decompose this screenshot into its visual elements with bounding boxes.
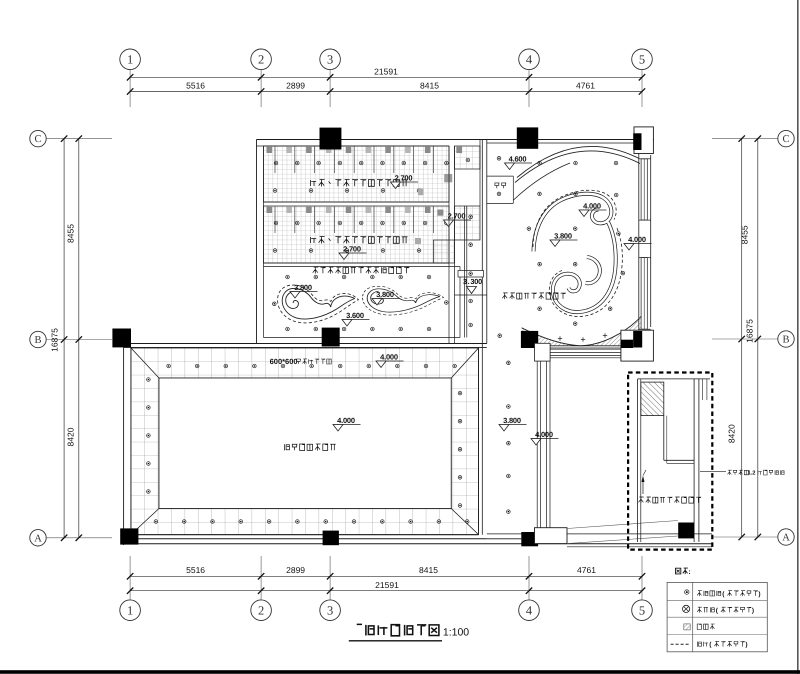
- svg-text:8415: 8415: [420, 80, 439, 90]
- svg-text:3.600: 3.600: [346, 311, 364, 320]
- svg-text:3: 3: [327, 53, 333, 67]
- svg-text:8420: 8420: [727, 424, 737, 443]
- svg-text:600*600: 600*600: [270, 357, 298, 366]
- svg-text:4.000: 4.000: [583, 202, 601, 211]
- svg-text:4761: 4761: [577, 565, 596, 575]
- svg-text:8420: 8420: [66, 427, 76, 446]
- svg-text:5516: 5516: [186, 565, 205, 575]
- svg-text:3.800: 3.800: [554, 232, 572, 241]
- svg-text:4.000: 4.000: [337, 416, 355, 425]
- svg-text:1.2: 1.2: [747, 470, 755, 477]
- svg-text:3: 3: [327, 603, 333, 617]
- svg-text:2: 2: [258, 53, 264, 67]
- svg-text:4.000: 4.000: [380, 353, 398, 362]
- svg-text:): ): [758, 591, 760, 598]
- svg-text:B: B: [782, 335, 789, 346]
- svg-text:16875: 16875: [745, 319, 755, 343]
- svg-text:3.800: 3.800: [294, 283, 312, 292]
- svg-text:8455: 8455: [740, 225, 750, 244]
- svg-text:C: C: [782, 134, 789, 145]
- svg-text:8455: 8455: [66, 224, 76, 243]
- svg-text::: :: [688, 569, 690, 576]
- svg-text:4: 4: [526, 53, 533, 67]
- svg-text:4761: 4761: [576, 80, 595, 90]
- svg-text:5: 5: [639, 53, 645, 67]
- svg-text:(: (: [722, 591, 725, 598]
- svg-text:1: 1: [127, 603, 133, 617]
- svg-text:3.800: 3.800: [376, 290, 394, 299]
- svg-text:5516: 5516: [186, 80, 205, 90]
- svg-text:1:100: 1:100: [443, 627, 469, 639]
- svg-text:4.600: 4.600: [509, 155, 527, 164]
- svg-text:(: (: [716, 608, 719, 615]
- svg-text:5: 5: [639, 603, 645, 617]
- svg-text:C: C: [34, 134, 41, 145]
- svg-text:): ): [745, 642, 747, 649]
- svg-text:2899: 2899: [286, 80, 305, 90]
- svg-text:3.800: 3.800: [503, 416, 521, 425]
- svg-text:8415: 8415: [419, 565, 438, 575]
- svg-text:21591: 21591: [375, 580, 399, 590]
- svg-text:4.000: 4.000: [628, 235, 646, 244]
- svg-text:(: (: [709, 642, 712, 649]
- svg-text:A: A: [34, 533, 42, 544]
- svg-text:0: 0: [478, 277, 482, 286]
- svg-text:2: 2: [258, 603, 264, 617]
- svg-text:4: 4: [526, 603, 533, 617]
- svg-text:1: 1: [127, 53, 133, 67]
- svg-text:B: B: [34, 335, 41, 346]
- svg-text:2.700: 2.700: [343, 245, 361, 254]
- svg-text:2.700: 2.700: [395, 174, 413, 183]
- svg-text:3: 3: [463, 277, 467, 286]
- svg-text:16875: 16875: [50, 328, 60, 352]
- svg-text:A: A: [782, 533, 790, 544]
- svg-text:21591: 21591: [374, 67, 398, 77]
- svg-text:): ): [752, 608, 754, 615]
- svg-text:2899: 2899: [286, 565, 305, 575]
- svg-text:4.000: 4.000: [535, 430, 553, 439]
